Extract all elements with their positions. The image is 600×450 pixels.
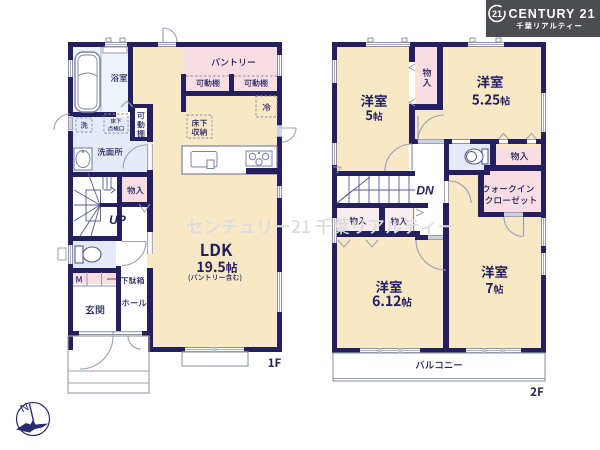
svg-text:21: 21: [492, 9, 502, 19]
svg-text:UP: UP: [109, 213, 127, 227]
svg-text:DN: DN: [416, 184, 434, 198]
svg-text:CENTURY 21: CENTURY 21: [508, 7, 595, 21]
